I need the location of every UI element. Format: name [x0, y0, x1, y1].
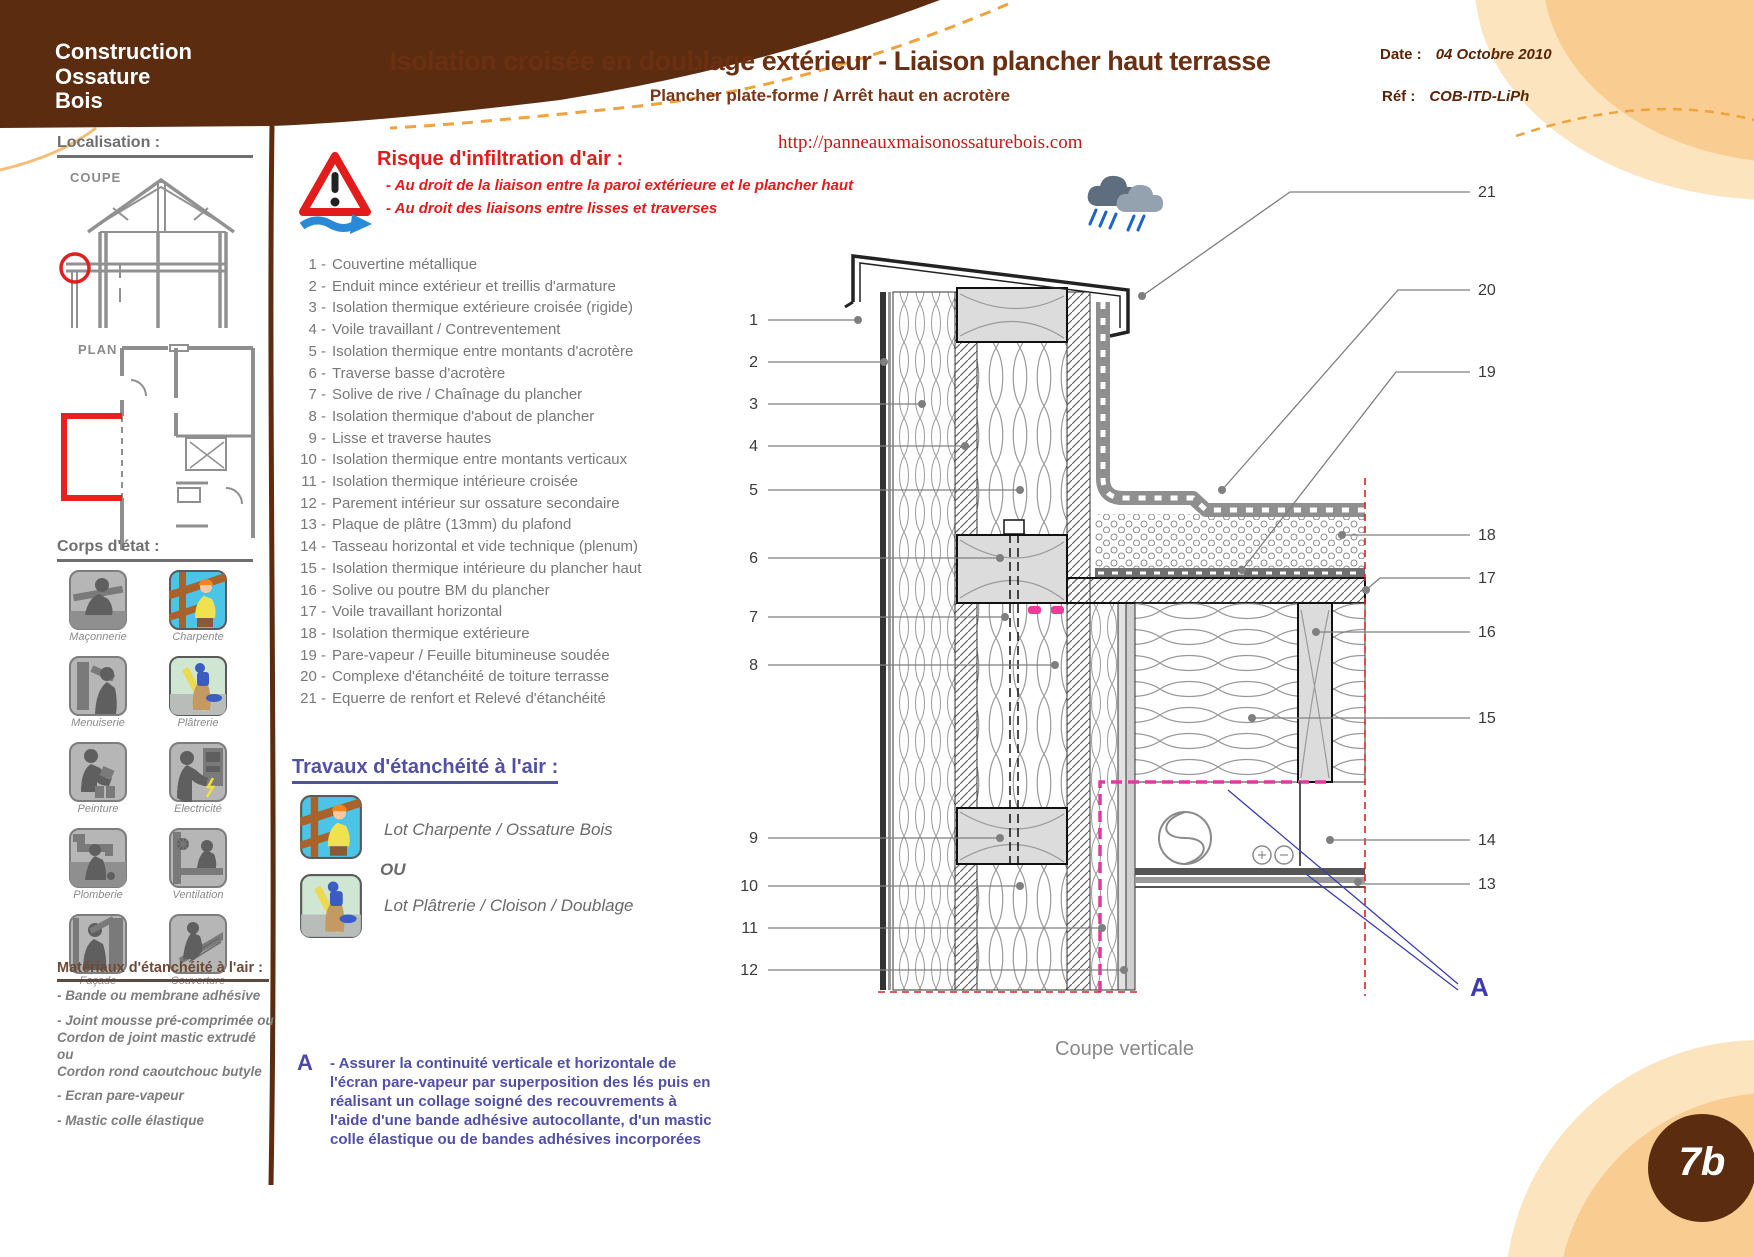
legend-item: 8 -Isolation thermique d'about de planch…	[292, 406, 644, 428]
materiaux-item: - Joint mousse pré-comprimée ou Cordon d…	[57, 1013, 275, 1081]
mason-icon	[69, 570, 127, 630]
coupe-label: COUPE	[70, 170, 121, 185]
legend-item: 10 -Isolation thermique entre montants v…	[292, 449, 644, 471]
callout-numbers-left: 1 2 3 4 5 6 7 8 9 10 11 12	[740, 312, 758, 979]
legend-item: 16 -Solive ou poutre BM du plancher	[292, 580, 644, 602]
seal-dot-1	[1028, 606, 1041, 614]
carpenter-icon	[300, 795, 362, 859]
plan-sketch	[64, 345, 253, 550]
callout-6: 6	[749, 550, 758, 567]
legend-item: 4 -Voile travaillant / Contreventement	[292, 319, 644, 341]
callout-3: 3	[749, 396, 758, 413]
callout-14: 14	[1478, 832, 1496, 849]
legend-item: 1 -Couvertine métallique	[292, 254, 644, 276]
ref-row: Réf : COB-ITD-LiPh	[1382, 88, 1529, 105]
legend-item: 9 -Lisse et traverse hautes	[292, 428, 644, 450]
corps-heading: Corps d'état :	[57, 538, 253, 562]
ceiling-assembly	[1135, 782, 1365, 887]
warning-icon	[302, 156, 372, 234]
callout-1: 1	[749, 312, 758, 329]
materiaux-item: - Ecran pare-vapeur	[57, 1088, 275, 1105]
page-subtitle: Plancher plate-forme / Arrêt haut en acr…	[305, 86, 1355, 106]
materiaux-item: - Mastic colle élastique	[57, 1113, 275, 1130]
air-flow-wave	[302, 220, 356, 228]
roof-insulation-dots	[1095, 514, 1365, 568]
pictogram-maconnerie: Maçonnerie	[66, 570, 130, 643]
pictogram-lot-platrerie	[300, 874, 362, 938]
legend-item: 15 -Isolation thermique intérieure du pl…	[292, 558, 644, 580]
joiner-icon	[69, 656, 127, 716]
legend-item: 20 -Complexe d'étanchéité de toiture ter…	[292, 666, 644, 688]
callout-4: 4	[749, 438, 758, 455]
carpenter-icon	[169, 570, 227, 630]
waterproofing-membrane	[1103, 302, 1365, 510]
materiaux-heading: Matériaux d'étanchéité à l'air :	[57, 960, 269, 982]
legend-item: 3 -Isolation thermique extérieure croisé…	[292, 297, 644, 319]
trade-label: Peinture	[66, 803, 130, 815]
legend-item: 19 -Pare-vapeur / Feuille bitumineuse so…	[292, 645, 644, 667]
callout-numbers-right: 21 20 19 18 17 16 15 14 13	[1478, 184, 1496, 893]
page-number: 7b	[1660, 1140, 1744, 1185]
callout-19: 19	[1478, 364, 1496, 381]
legend-item: 11 -Isolation thermique intérieure crois…	[292, 471, 644, 493]
lot-charpente-label: Lot Charpente / Ossature Bois	[384, 820, 613, 840]
materiaux-item: - Bande ou membrane adhésive	[57, 988, 275, 1005]
plasterer-icon	[300, 874, 362, 938]
pictogram-electricite: Electricité	[166, 742, 230, 815]
callout-10: 10	[740, 878, 758, 895]
callout-12: 12	[740, 962, 758, 979]
pictogram-plomberie: Plomberie	[66, 828, 130, 901]
electrician-icon	[169, 742, 227, 802]
page-title: Isolation croisée en doublage extérieur …	[305, 46, 1355, 77]
sheathing-layer	[955, 292, 977, 990]
trade-pictograms: Maçonnerie Charpente Menuiserie Plâtreri…	[66, 570, 230, 987]
ref-label: Réf :	[1382, 88, 1415, 105]
pictogram-peinture: Peinture	[66, 742, 130, 815]
note-marker: A	[297, 1050, 313, 1076]
warning-line-1: - Au droit de la liaison entre la paroi …	[386, 177, 853, 194]
callout-20: 20	[1478, 282, 1496, 299]
callout-7: 7	[749, 609, 758, 626]
lot-platrerie-label: Lot Plâtrerie / Cloison / Doublage	[384, 896, 633, 916]
section-drawing: 1 2 3 4 5 6 7 8 9 10 11 12	[740, 176, 1496, 996]
callout-8: 8	[749, 657, 758, 674]
trade-label: Electricité	[166, 803, 230, 815]
plasterer-icon	[169, 656, 227, 716]
plumber-icon	[69, 828, 127, 888]
legend-list: 1 -Couvertine métallique 2 -Enduit mince…	[292, 254, 644, 710]
detail-a-leaders	[1228, 790, 1458, 990]
legend-item: 2 -Enduit mince extérieur et treillis d'…	[292, 276, 644, 298]
legend-item: 17 -Voile travaillant horizontal	[292, 601, 644, 623]
detail-a-marker: A	[1470, 972, 1489, 1003]
drawing-caption: Coupe verticale	[1055, 1038, 1285, 1061]
coupe-sketch	[61, 180, 234, 328]
warning-title: Risque d'infiltration d'air :	[377, 148, 623, 171]
callout-9: 9	[749, 830, 758, 847]
trade-label: Plâtrerie	[166, 717, 230, 729]
interior-lining-2	[1126, 603, 1135, 990]
legend-item: 6 -Traverse basse d'acrotère	[292, 363, 644, 385]
legend-item: 13 -Plaque de plâtre (13mm) du plafond	[292, 514, 644, 536]
materiaux-list: - Bande ou membrane adhésive - Joint mou…	[57, 988, 275, 1138]
inner-sheathing-layer	[1067, 292, 1090, 990]
callout-17: 17	[1478, 570, 1496, 587]
trade-label: Plomberie	[66, 889, 130, 901]
pictogram-menuiserie: Menuiserie	[66, 656, 130, 729]
coupe-detail-circle	[61, 254, 89, 282]
legend-item: 7 -Solive de rive / Chaînage du plancher	[292, 384, 644, 406]
callout-11: 11	[741, 920, 758, 937]
date-row: Date : 04 Octobre 2010	[1380, 46, 1552, 63]
airtightness-note: - Assurer la continuité verticale et hor…	[330, 1054, 718, 1149]
interior-cross-insulation	[1090, 603, 1118, 990]
website-url: http://panneauxmaisonossaturebois.com	[778, 132, 1178, 154]
callout-2: 2	[749, 354, 758, 371]
trade-label: Menuiserie	[66, 717, 130, 729]
callout-16: 16	[1478, 624, 1496, 641]
trade-label: Ventilation	[166, 889, 230, 901]
date-value: 04 Octobre 2010	[1436, 46, 1552, 63]
interior-lining-1	[1118, 603, 1126, 990]
legend-item: 18 -Isolation thermique extérieure	[292, 623, 644, 645]
travaux-heading: Travaux d'étanchéité à l'air :	[292, 756, 558, 784]
warning-line-2: - Au droit des liaisons entre lisses et …	[386, 200, 717, 217]
plan-label: PLAN	[78, 342, 117, 357]
callout-21: 21	[1478, 184, 1496, 201]
pictogram-ventilation: Ventilation	[166, 828, 230, 901]
callout-18: 18	[1478, 527, 1496, 544]
plan-detail-highlight	[64, 416, 122, 498]
ventilation-icon	[169, 828, 227, 888]
legend-item: 12 -Parement intérieur sur ossature seco…	[292, 493, 644, 515]
trade-label: Maçonnerie	[66, 631, 130, 643]
seal-dot-2	[1051, 606, 1064, 614]
trade-label: Charpente	[166, 631, 230, 643]
callout-5: 5	[749, 482, 758, 499]
pictogram-charpente: Charpente	[166, 570, 230, 643]
date-label: Date :	[1380, 46, 1422, 63]
localisation-heading: Localisation :	[57, 134, 253, 158]
callout-15: 15	[1478, 710, 1496, 727]
floor-deck-sheathing	[1067, 578, 1365, 603]
legend-item: 21 -Equerre de renfort et Relevé d'étanc…	[292, 688, 644, 710]
rain-cloud-icon	[1088, 176, 1163, 230]
legend-item: 14 -Tasseau horizontal et vide technique…	[292, 536, 644, 558]
exterior-insulation-layer	[893, 292, 955, 990]
pictogram-platrerie: Plâtrerie	[166, 656, 230, 729]
or-label: OU	[380, 860, 406, 880]
legend-item: 5 -Isolation thermique entre montants d'…	[292, 341, 644, 363]
pictogram-lot-charpente	[300, 795, 362, 859]
logo: Construction Ossature Bois	[55, 40, 285, 114]
callout-13: 13	[1478, 876, 1496, 893]
ref-value: COB-ITD-LiPh	[1429, 88, 1529, 105]
painter-icon	[69, 742, 127, 802]
render-coat-layer	[880, 292, 886, 990]
